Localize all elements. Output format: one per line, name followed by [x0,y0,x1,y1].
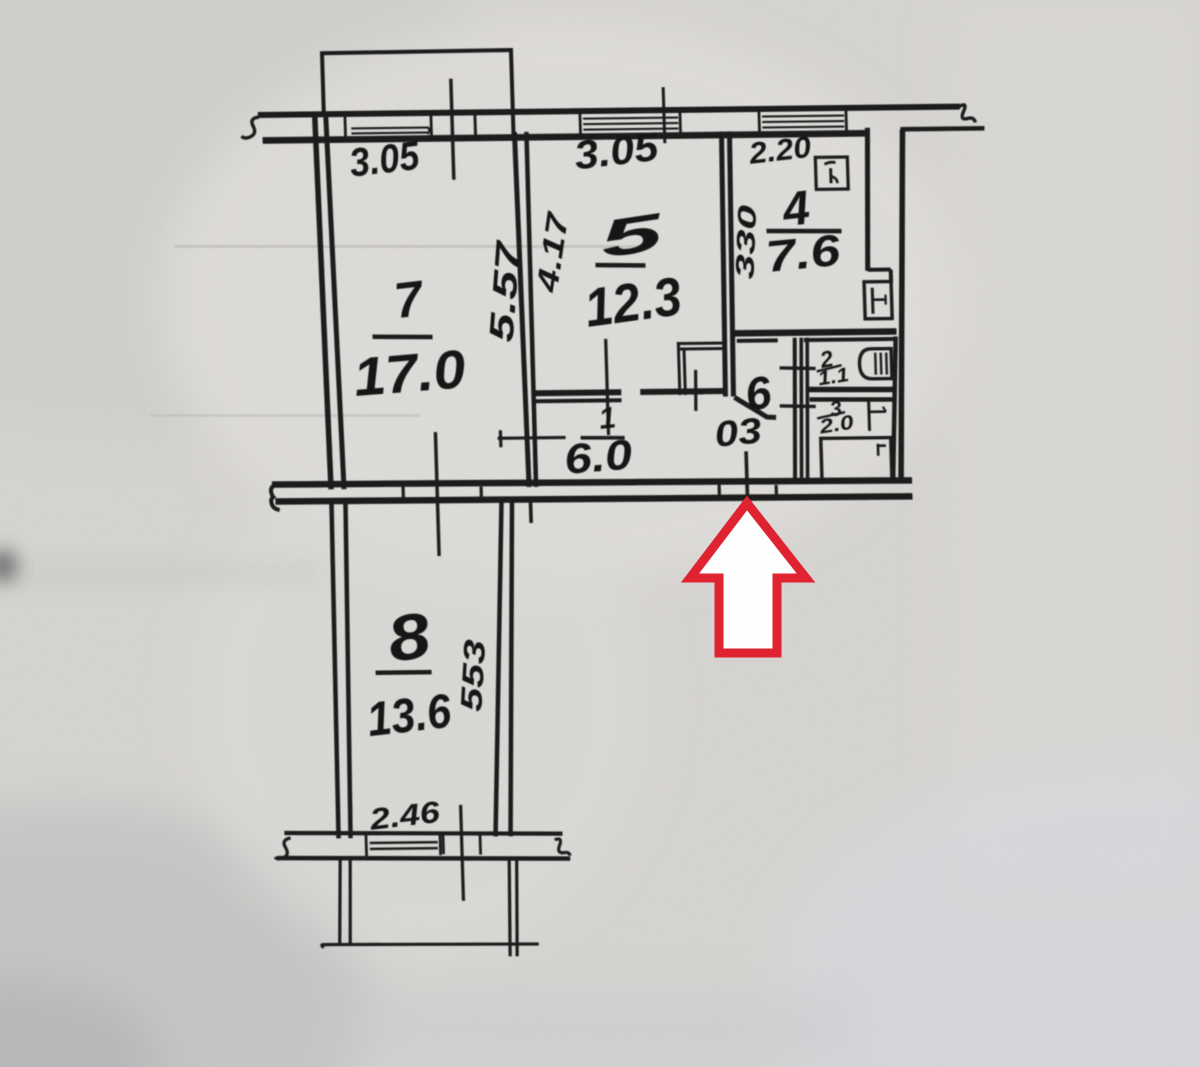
svg-text:5: 5 [596,203,669,270]
svg-text:3.05: 3.05 [347,134,423,186]
svg-text:553: 553 [455,638,492,713]
svg-text:6.0: 6.0 [562,431,634,483]
svg-text:13.6: 13.6 [364,685,455,747]
svg-text:17.0: 17.0 [351,339,468,408]
svg-text:5.57: 5.57 [483,237,529,343]
svg-text:12.3: 12.3 [581,266,686,338]
svg-text:03: 03 [712,409,763,454]
svg-text:1.1: 1.1 [816,364,850,390]
svg-text:7.6: 7.6 [763,226,843,282]
svg-text:330: 330 [729,203,762,280]
